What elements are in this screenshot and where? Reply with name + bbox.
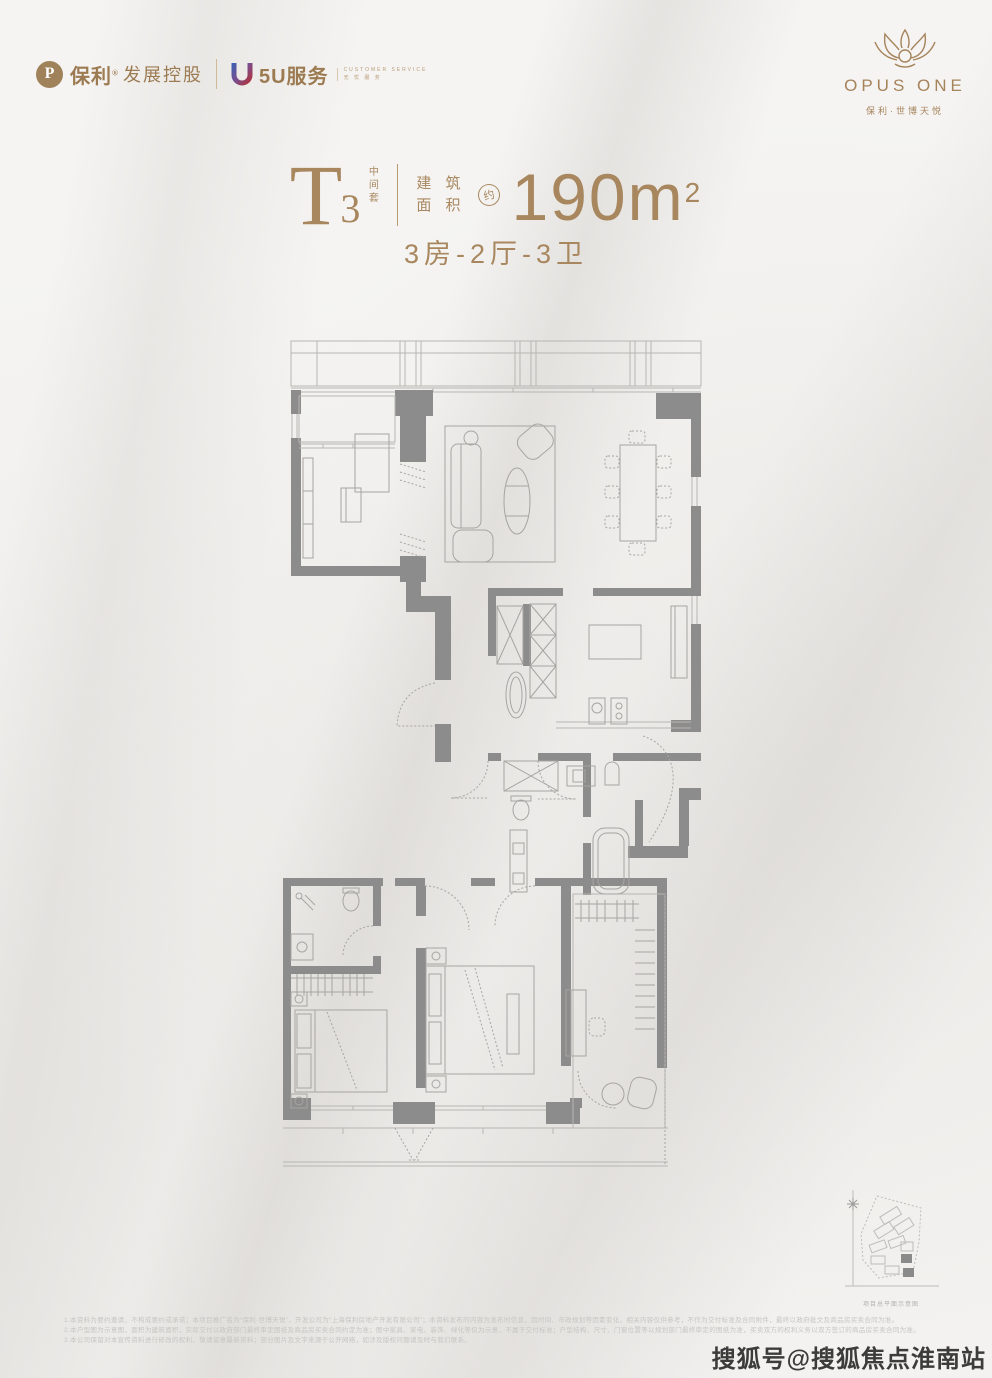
unit-type-number: 3 [340,185,360,232]
area-label: 建 筑 面 积 [416,173,465,217]
disclaimer-line-2: 2.本户型图为示意图，面积为建筑面积，实际交付以政府部门最终审定图纸及商品房买卖… [64,1326,936,1336]
area-superscript: 2 [685,177,703,208]
sohu-watermark: 搜狐号@搜狐焦点淮南站 [712,1339,986,1374]
furniture [291,420,687,1110]
area-label-line1: 建 筑 [416,173,465,195]
wuyou-tagline-cn: 无 忧 服 务 [344,76,428,81]
floor-plan [283,338,715,1180]
wuyou-tagline-en: CUSTOMER SERVICE [344,68,428,73]
opus-one-logo: OPUS ONE 保利·世博天悦 [840,26,970,117]
room-layout: 3房-2厅-3卫 [0,232,992,271]
approx-circle: 约 [475,182,502,209]
unit-type-letter: T [290,156,343,234]
opus-wings-icon [873,26,937,74]
title-divider [397,164,398,226]
windows [283,396,697,1166]
poly-suffix: 发展控股 [123,61,203,87]
5u-logo-icon [230,61,254,87]
area-label-line2: 面 积 [416,195,465,217]
site-plan-caption: 项目总平面示意图 [836,1299,946,1308]
site-plan-map [839,1186,943,1290]
header-logos: P 保利® 发展控股 5U服务 CUSTOMER SERVICE 无 忧 服 务 [36,52,427,96]
unit-title: T 3 中间套 建 筑 面 积 约 190m2 [0,156,992,234]
poly-brand-text: 保利 [70,66,112,88]
opus-name: OPUS ONE [840,76,970,96]
opus-subtitle: 保利·世博天悦 [840,104,970,117]
area-value: 190m2 [512,163,703,227]
poly-brand: 保利® [70,60,119,89]
unit-type-tag: 中间套 [364,166,379,228]
wuyou-tagline: CUSTOMER SERVICE 无 忧 服 务 [337,68,428,81]
site-plan: 项目总平面示意图 [836,1186,946,1308]
area-number: 190m [512,160,685,234]
disclaimer-line-1: 1.本资料为要约邀请，不构成要约或承诺；本项目推广名为“保利·世博天悦”，开发公… [64,1316,936,1326]
top-balcony [291,341,701,392]
logo-divider [216,59,217,89]
poly-logo-icon: P [36,61,63,88]
wuyou-service-label: 5U服务 [259,60,329,89]
registered-mark: ® [112,68,119,77]
